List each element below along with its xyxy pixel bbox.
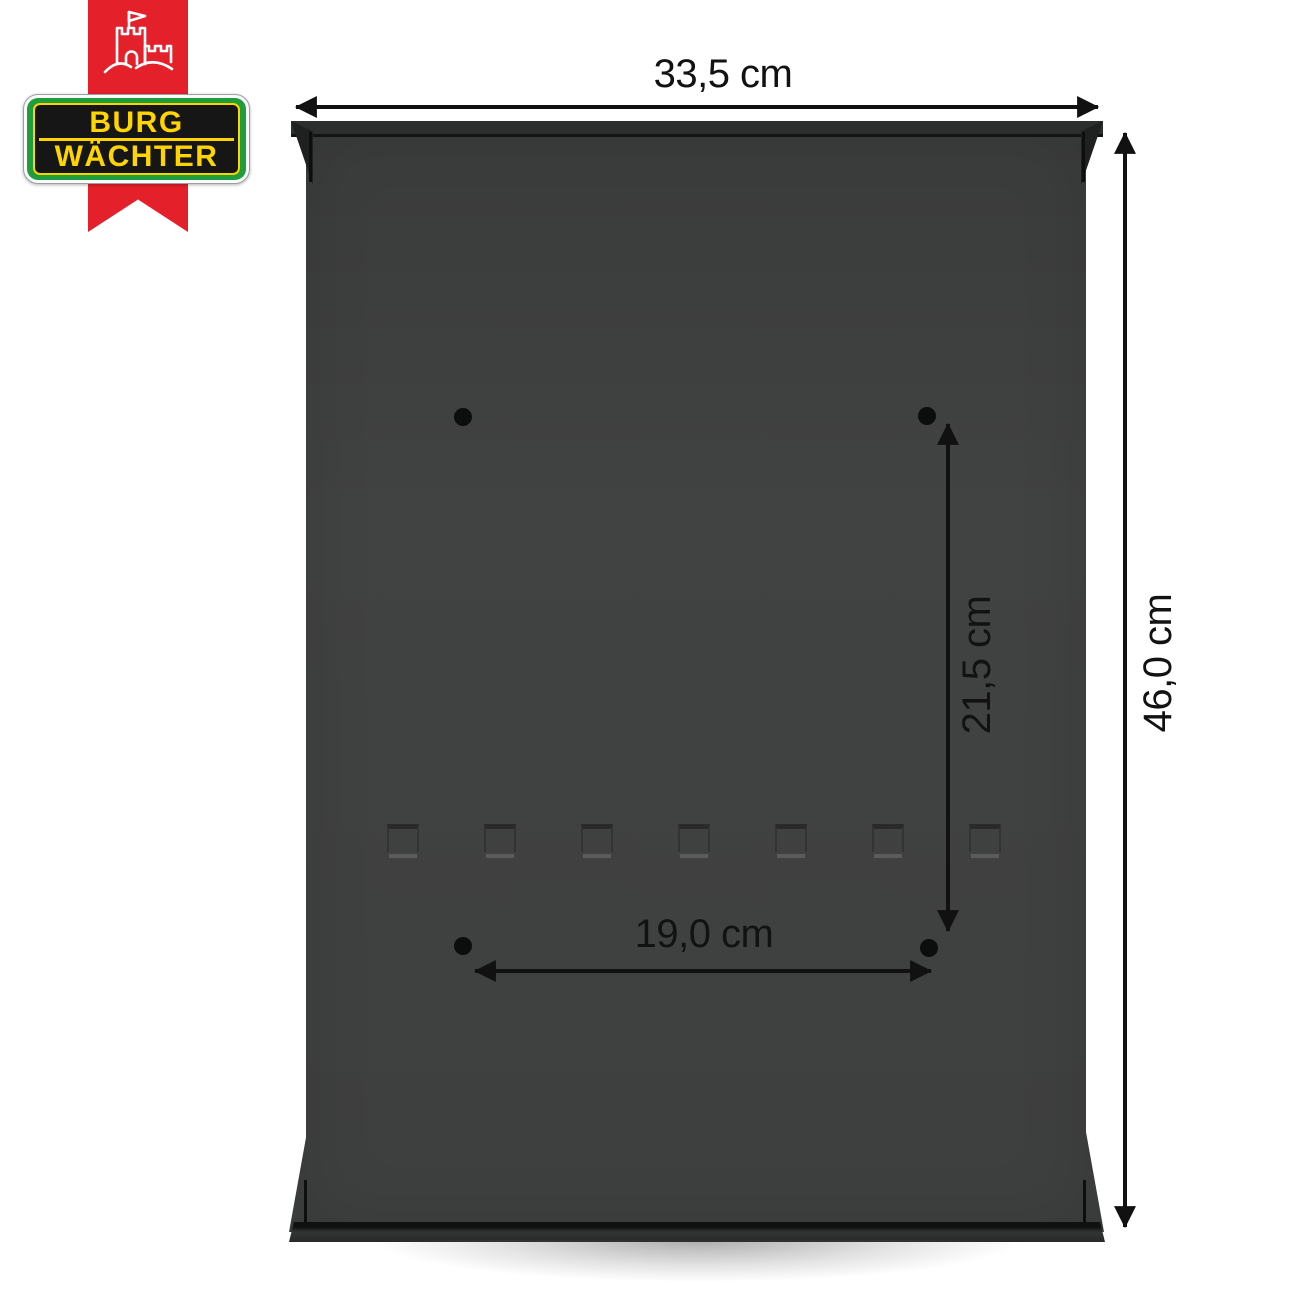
emboss-mark — [678, 824, 710, 852]
emboss-mark — [484, 824, 516, 852]
emboss-mark — [775, 824, 807, 852]
emboss-mark — [969, 824, 1001, 852]
corner-seam-top-left — [309, 132, 312, 182]
emboss-mark — [387, 824, 419, 852]
mailbox-bottom-right-flare — [1086, 1132, 1104, 1232]
badge-green-frame: BURG WÄCHTER — [27, 98, 246, 180]
mailbox-lid-edge — [291, 121, 1103, 137]
mounting-hole-top-right — [918, 407, 936, 425]
brand-word-waechter: WÄCHTER — [55, 143, 219, 170]
dim-label-overall-width: 33,5 cm — [548, 52, 898, 97]
mounting-hole-bottom-left — [454, 937, 472, 955]
brand-word-burg: BURG — [89, 109, 183, 136]
dim-label-overall-height: 46,0 cm — [1132, 548, 1184, 778]
product-dimension-diagram: BURG WÄCHTER 33,5 — [0, 0, 1300, 1300]
dim-label-hole-spacing-horizontal: 19,0 cm — [529, 912, 879, 957]
mailbox-drop-shadow — [283, 1240, 1113, 1296]
mounting-hole-bottom-right — [920, 939, 938, 957]
brand-badge: BURG WÄCHTER — [23, 94, 250, 184]
mounting-hole-top-left — [454, 408, 472, 426]
castle-icon — [98, 6, 178, 82]
corner-seam-top-right — [1082, 132, 1085, 182]
mailbox-bottom-flap — [289, 1222, 1105, 1242]
dim-label-hole-spacing-vertical: 21,5 cm — [951, 550, 1003, 780]
emboss-mark — [872, 824, 904, 852]
badge-black-panel: BURG WÄCHTER — [33, 103, 240, 175]
corner-seam-bottom-left — [304, 1180, 307, 1228]
corner-seam-bottom-right — [1083, 1180, 1086, 1228]
emboss-mark — [581, 824, 613, 852]
